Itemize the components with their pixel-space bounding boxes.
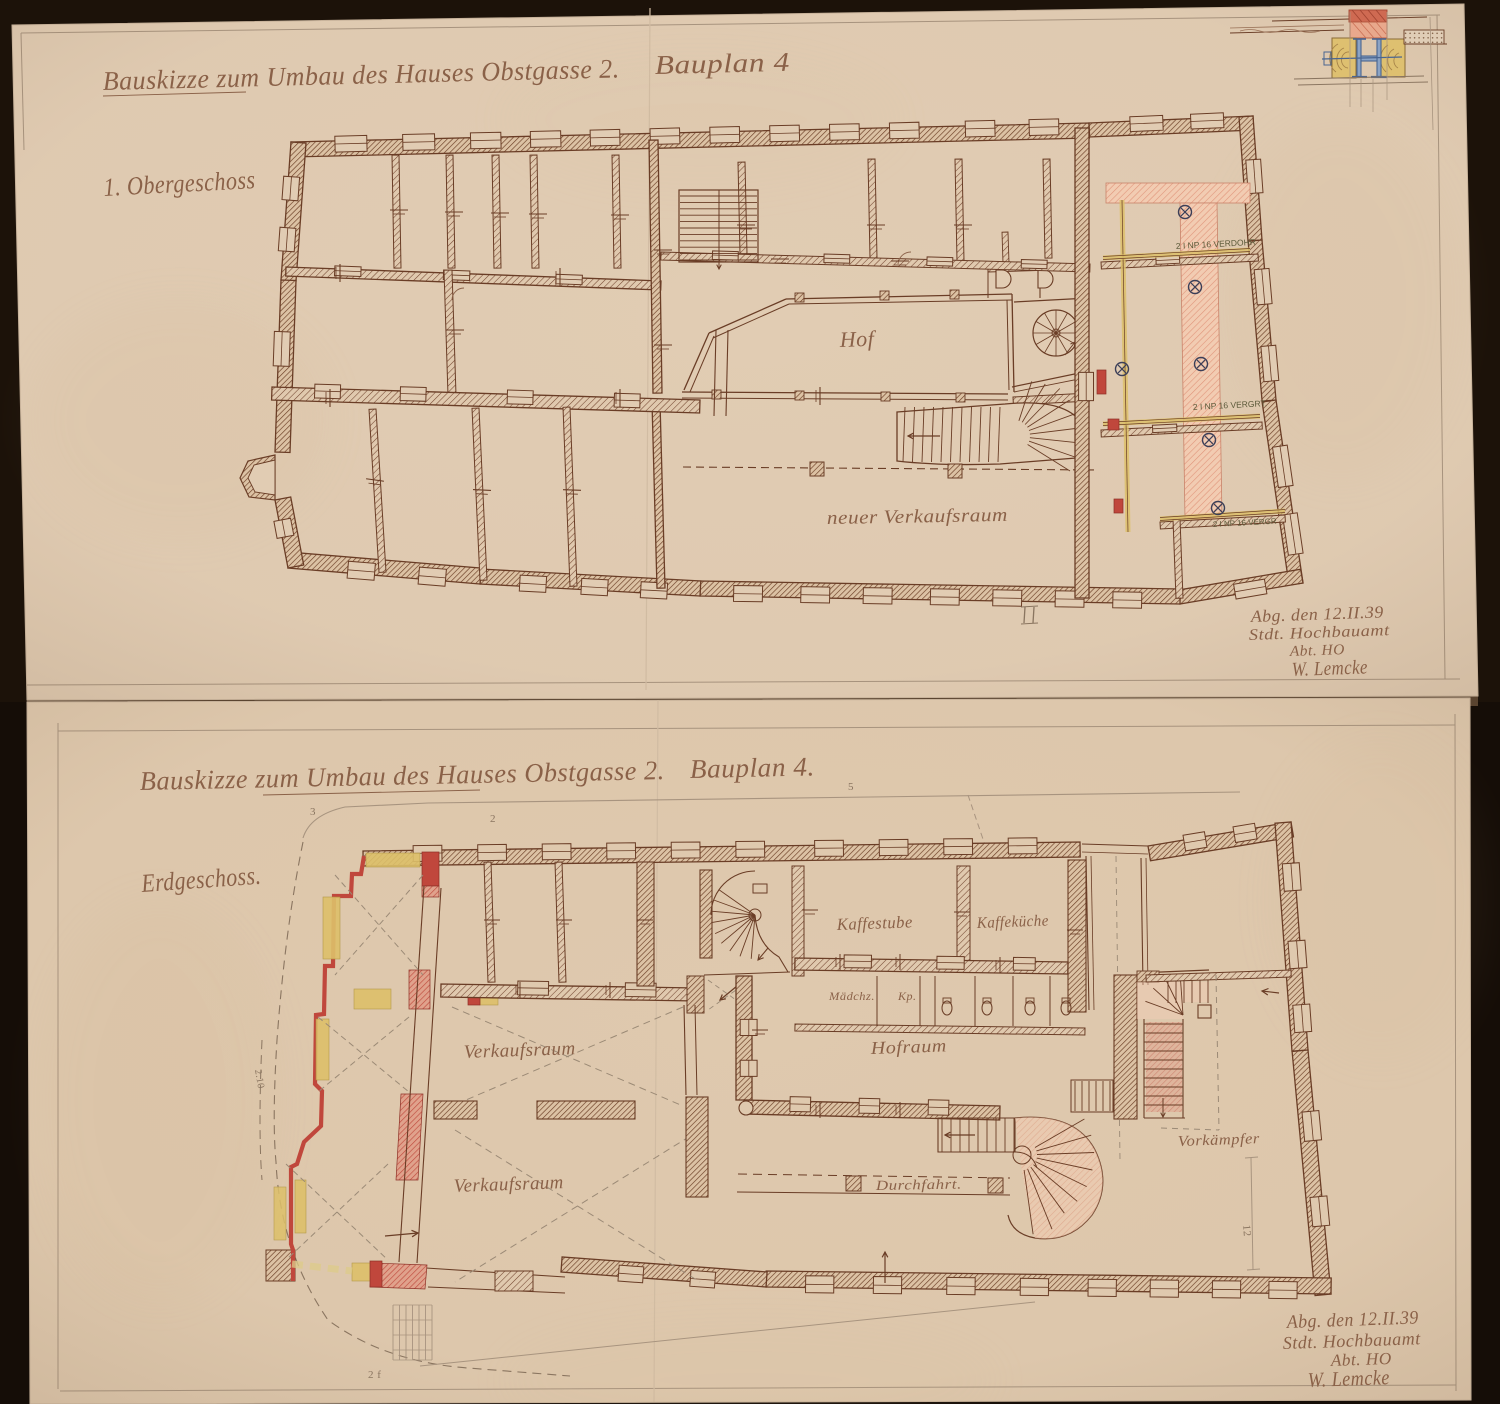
svg-text:W. Lemcke: W. Lemcke <box>1307 1365 1390 1392</box>
svg-text:Verkaufsraum: Verkaufsraum <box>453 1172 564 1197</box>
svg-text:Durchfahrt.: Durchfahrt. <box>875 1178 962 1195</box>
svg-text:Bauplan 4.: Bauplan 4. <box>689 751 815 784</box>
svg-text:2: 2 <box>490 813 496 825</box>
svg-text:Kaffeküche: Kaffeküche <box>976 912 1049 932</box>
svg-text:Hofraum: Hofraum <box>869 1035 947 1058</box>
svg-text:Kaffestube: Kaffestube <box>835 912 913 934</box>
svg-text:3: 3 <box>310 806 316 818</box>
svg-text:Vorkämpfer: Vorkämpfer <box>1178 1131 1261 1150</box>
svg-text:Mädchz.: Mädchz. <box>828 989 875 1003</box>
svg-text:Verkaufsraum: Verkaufsraum <box>463 1038 576 1063</box>
svg-text:Kp.: Kp. <box>897 989 917 1003</box>
svg-text:5: 5 <box>848 781 854 793</box>
svg-text:neuer Verkaufsraum: neuer Verkaufsraum <box>827 505 1008 529</box>
svg-text:Bauplan 4: Bauplan 4 <box>654 47 790 80</box>
svg-text:12: 12 <box>1240 1224 1253 1237</box>
svg-text:Hof: Hof <box>838 326 877 352</box>
svg-text:2 f: 2 f <box>368 1369 381 1381</box>
svg-text:W. Lemcke: W. Lemcke <box>1291 656 1368 681</box>
